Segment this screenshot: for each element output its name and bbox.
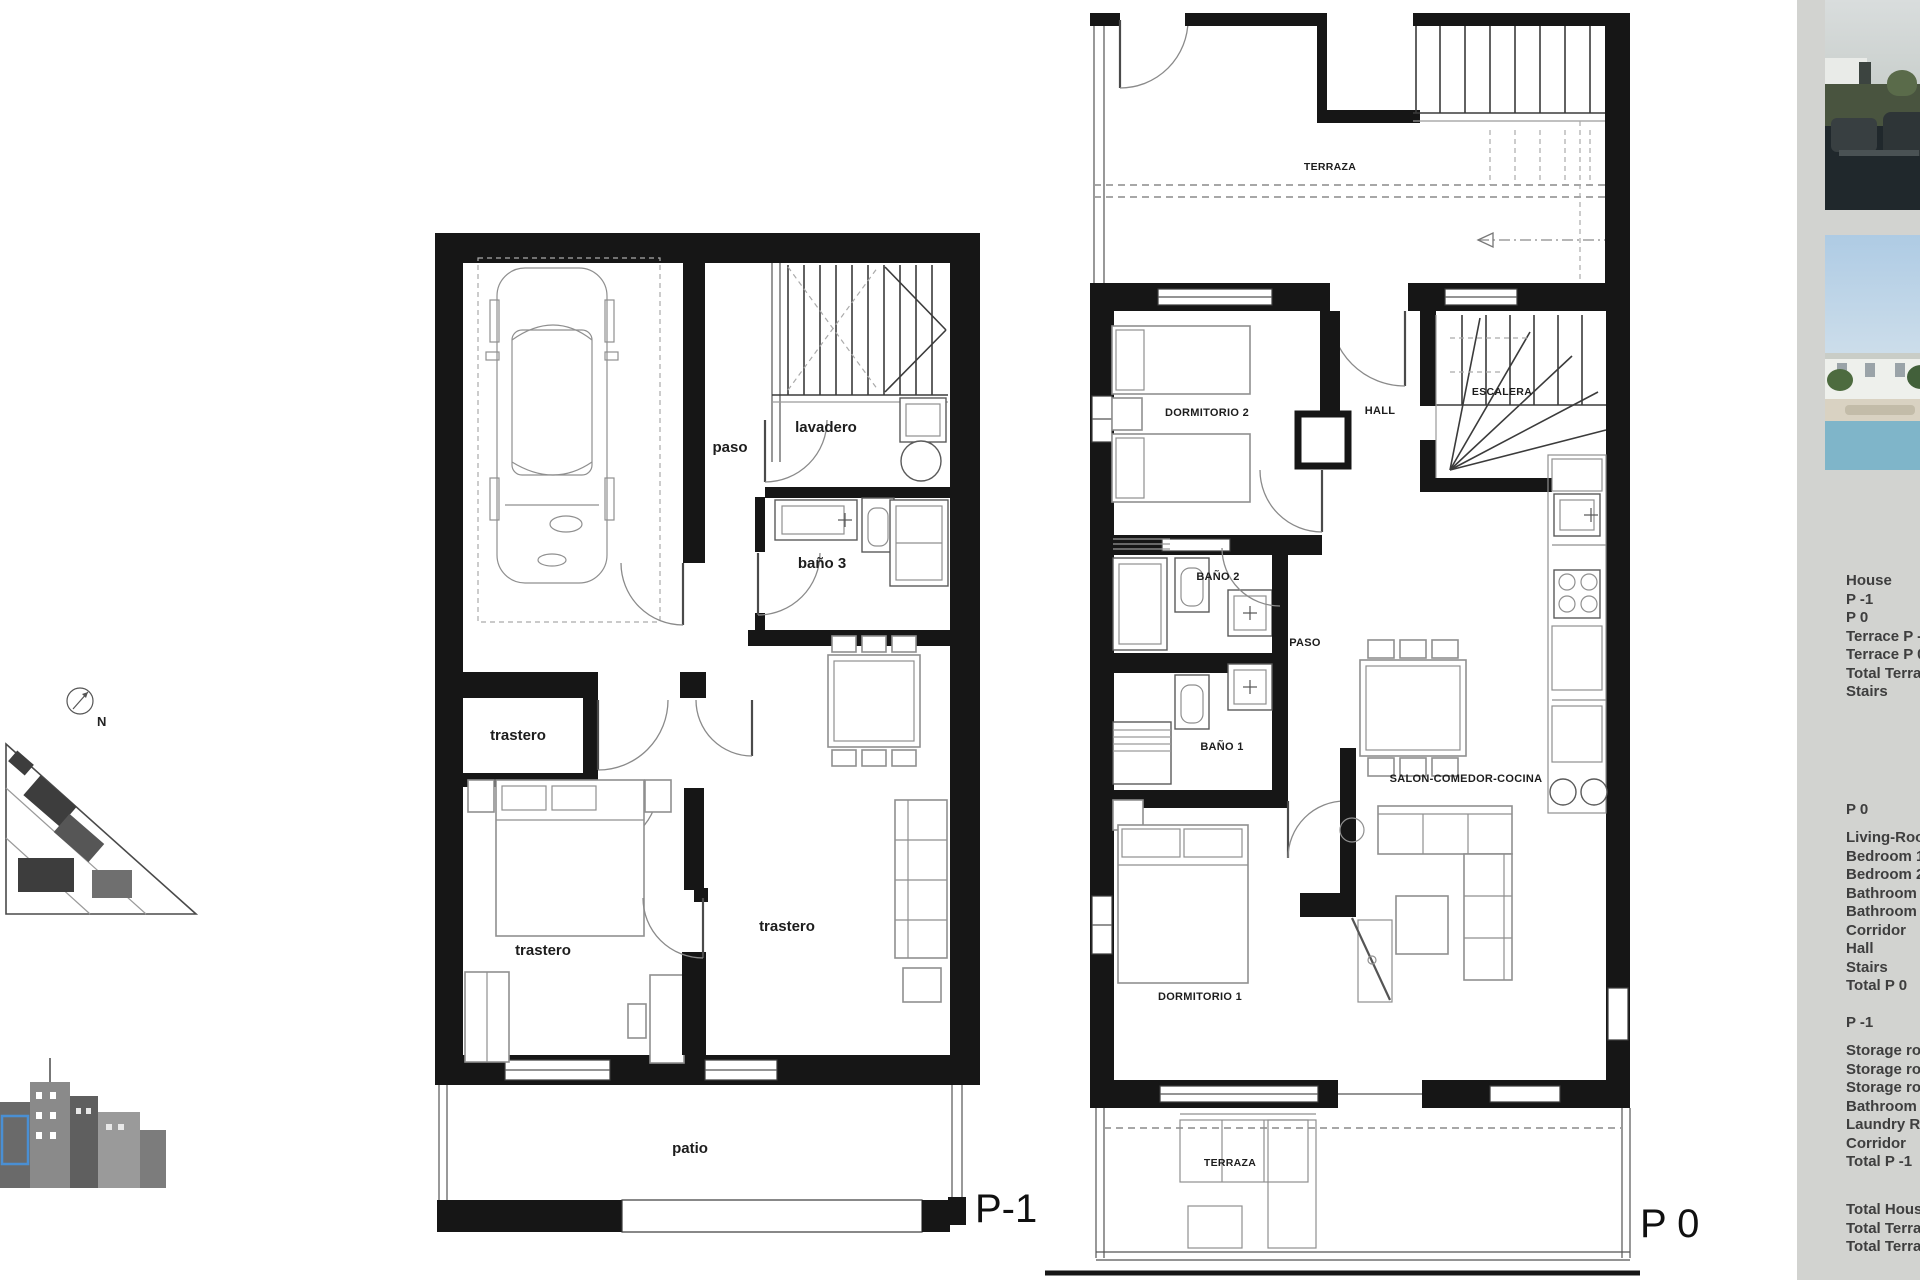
label-trastero-living: trastero xyxy=(759,918,815,935)
garage xyxy=(478,258,705,625)
summary-row: Total Terrace xyxy=(1846,665,1920,684)
terrace-bottom: TERRAZA xyxy=(1045,1108,1640,1273)
label-dormitorio-2: DORMITORIO 2 xyxy=(1165,407,1249,419)
label-salon-comedor-cocina: SALON-COMEDOR-COCINA xyxy=(1390,773,1543,785)
p0-row: Hall xyxy=(1846,940,1920,959)
north-label: N xyxy=(97,714,106,729)
p0-breakdown-list: Living-Room Bedroom 1 Bedroom 2 Bathroom… xyxy=(1846,829,1920,996)
storage-living xyxy=(828,636,947,1002)
p-1-row: Storage room 2 xyxy=(1846,1061,1920,1080)
p0-row: Bathroom 2 xyxy=(1846,903,1920,922)
label-dormitorio-1: DORMITORIO 1 xyxy=(1158,991,1242,1003)
summary-list: House P -1 P 0 Terrace P -1 Terrace P 0 … xyxy=(1846,572,1920,702)
p-minus-1-section-title: P -1 xyxy=(1846,1014,1873,1033)
summary-row: P 0 xyxy=(1846,609,1920,628)
label-paso-p1: paso xyxy=(712,439,747,456)
p-1-row: Corridor xyxy=(1846,1135,1920,1154)
plans-drawing: N xyxy=(0,0,1920,1280)
label-bano-3: baño 3 xyxy=(798,555,846,572)
summary-row: P -1 xyxy=(1846,591,1920,610)
totals-row: Total Terrace xyxy=(1846,1238,1920,1257)
car xyxy=(486,268,618,583)
laundry-room xyxy=(765,398,950,498)
terrace-top: TERRAZA xyxy=(1090,13,1630,283)
p0-row: Bathroom 1 xyxy=(1846,885,1920,904)
summary-row: House xyxy=(1846,572,1920,591)
bathroom-3 xyxy=(748,497,950,646)
p-minus-1-breakdown-list: Storage room 1 Storage room 2 Storage ro… xyxy=(1846,1042,1920,1172)
living-dining xyxy=(1340,640,1512,980)
floor-label-p-minus-1: P-1 xyxy=(975,1187,1037,1231)
p0-row: Living-Room xyxy=(1846,829,1920,848)
p0-section-title: P 0 xyxy=(1846,801,1868,820)
p-1-row: Storage room 3 xyxy=(1846,1079,1920,1098)
terrace-photo xyxy=(1825,0,1920,210)
summary-row: Terrace P -1 xyxy=(1846,628,1920,647)
label-paso-p0: PASO xyxy=(1289,637,1321,649)
stairs-interior xyxy=(1420,311,1606,492)
p0-row: Bedroom 2 xyxy=(1846,866,1920,885)
storage-bedroom xyxy=(465,780,708,1063)
floor-plan-sheet-page: { "compass": { "north_label": "N" }, "si… xyxy=(0,0,1920,1280)
label-bano-1: BAÑO 1 xyxy=(1200,740,1243,753)
floor-label-p-0: P 0 xyxy=(1640,1202,1699,1246)
label-escalera: ESCALERA xyxy=(1472,386,1532,398)
label-hall: HALL xyxy=(1365,405,1396,417)
patio xyxy=(437,1085,966,1232)
bedroom-1 xyxy=(1113,748,1392,1002)
p0-row: Bedroom 1 xyxy=(1846,848,1920,867)
label-trastero-small: trastero xyxy=(490,727,546,744)
kitchen xyxy=(1548,455,1607,813)
hall-closet xyxy=(1298,414,1348,466)
p-1-row: Total P -1 xyxy=(1846,1153,1920,1172)
plan-p-0: TERRAZA xyxy=(1045,13,1699,1273)
sidebar: House P -1 P 0 Terrace P -1 Terrace P 0 … xyxy=(1797,0,1920,1280)
p-1-row: Bathroom 3 xyxy=(1846,1098,1920,1117)
label-terraza-bottom: TERRAZA xyxy=(1204,1157,1256,1169)
p0-row: Total P 0 xyxy=(1846,977,1920,996)
label-bano-2: BAÑO 2 xyxy=(1196,570,1239,583)
summary-row: Stairs xyxy=(1846,683,1920,702)
building-silhouette xyxy=(0,1058,166,1188)
totals-row: Total House xyxy=(1846,1201,1920,1220)
p0-row: Stairs xyxy=(1846,959,1920,978)
label-lavadero: lavadero xyxy=(795,419,857,436)
totals-row: Total Terrace xyxy=(1846,1220,1920,1239)
plan-p-minus-1: paso lavadero baño 3 trastero trastero t… xyxy=(435,233,1037,1232)
summary-row: Terrace P 0 xyxy=(1846,646,1920,665)
pool-photo xyxy=(1825,235,1920,470)
label-trastero-bedroom: trastero xyxy=(515,942,571,959)
label-terraza-top: TERRAZA xyxy=(1304,161,1356,173)
p0-row: Corridor xyxy=(1846,922,1920,941)
p-1-row: Storage room 1 xyxy=(1846,1042,1920,1061)
p-1-row: Laundry Room xyxy=(1846,1116,1920,1135)
label-patio: patio xyxy=(672,1140,708,1157)
site-plan-map xyxy=(0,744,196,1188)
totals-list: Total House Total Terrace Total Terrace xyxy=(1846,1201,1920,1257)
north-compass: N xyxy=(67,688,106,729)
